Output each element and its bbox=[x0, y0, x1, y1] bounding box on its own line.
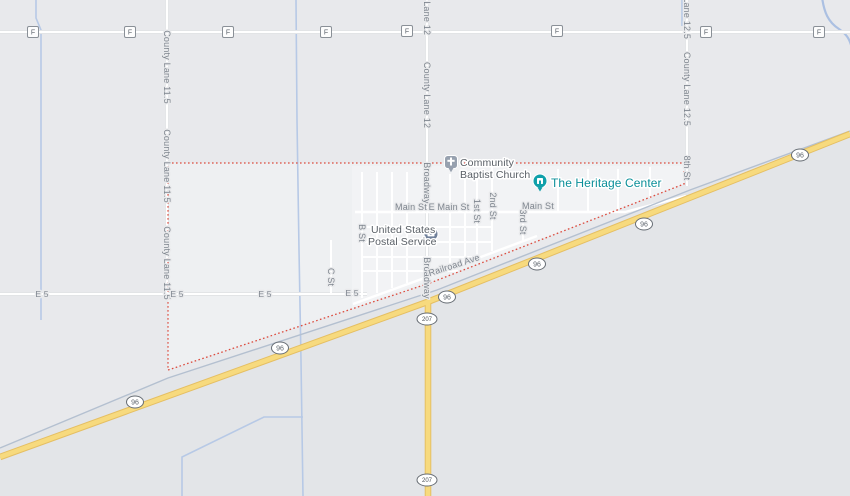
f-route-shield: F bbox=[324, 30, 328, 37]
b-st-label: B St bbox=[357, 224, 367, 242]
post-office-poi[interactable]: United States Postal Service bbox=[368, 224, 438, 248]
f-route-shield: F bbox=[704, 30, 708, 37]
map-canvas[interactable]: F F F F F F F F 96 96 96 96 96 96 207 20… bbox=[0, 0, 850, 496]
broadway-label: Broadway bbox=[422, 257, 432, 299]
f-route-shield: F bbox=[555, 29, 559, 36]
post-office-label-line2[interactable]: Postal Service bbox=[368, 236, 437, 248]
county-lane-12-5-label: County Lane 12.5 bbox=[682, 52, 692, 126]
f-route-shield: F bbox=[31, 30, 35, 37]
county-lane-11-5-label: County Lane 11.5 bbox=[162, 129, 172, 203]
us96-shield: 96 bbox=[443, 294, 451, 301]
eighth-st-label: 8th St bbox=[682, 156, 692, 181]
third-st-label: 3rd St bbox=[518, 209, 528, 235]
first-st-label: 1st St bbox=[472, 199, 482, 224]
e5-label: E 5 bbox=[170, 289, 183, 299]
f-route-shield: F bbox=[405, 29, 409, 36]
county-lane-12-label: County Lane 12 bbox=[422, 0, 432, 35]
f-route-shield: F bbox=[226, 30, 230, 37]
county-lane-11-5-label: County Lane 11.5 bbox=[162, 30, 172, 104]
route207-shield: 207 bbox=[422, 478, 433, 484]
heritage-center-label[interactable]: The Heritage Center bbox=[551, 176, 662, 190]
us96-shield: 96 bbox=[131, 399, 139, 406]
e-main-st-label: E Main St bbox=[429, 202, 470, 212]
us96-shield: 96 bbox=[533, 261, 541, 268]
county-lane-12-label: County Lane 12 bbox=[422, 62, 432, 128]
main-st-label: Main St bbox=[395, 202, 427, 212]
map-svg: F F F F F F F F 96 96 96 96 96 96 207 20… bbox=[0, 0, 850, 496]
broadway-label: Broadway bbox=[422, 162, 432, 204]
c-st-label: C St bbox=[326, 268, 336, 287]
church-label-line1[interactable]: Community bbox=[460, 157, 515, 169]
church-label-line2[interactable]: Baptist Church bbox=[460, 169, 530, 181]
e5-label: E 5 bbox=[345, 288, 358, 298]
e5-label: E 5 bbox=[258, 289, 271, 299]
route207-shield: 207 bbox=[422, 317, 433, 323]
main-st-label: Main St bbox=[522, 201, 554, 211]
us96-shield: 96 bbox=[796, 152, 804, 159]
f-route-shield: F bbox=[128, 30, 132, 37]
us96-shield: 96 bbox=[276, 345, 284, 352]
heritage-center-poi[interactable]: The Heritage Center bbox=[533, 174, 662, 192]
post-office-label-line1[interactable]: United States bbox=[371, 224, 435, 236]
f-route-shield: F bbox=[817, 30, 821, 37]
county-lane-12-5-label: County Lane 12.5 bbox=[682, 0, 692, 39]
e5-label: E 5 bbox=[35, 289, 48, 299]
second-st-label: 2nd St bbox=[488, 192, 498, 220]
us96-shield: 96 bbox=[640, 221, 648, 228]
